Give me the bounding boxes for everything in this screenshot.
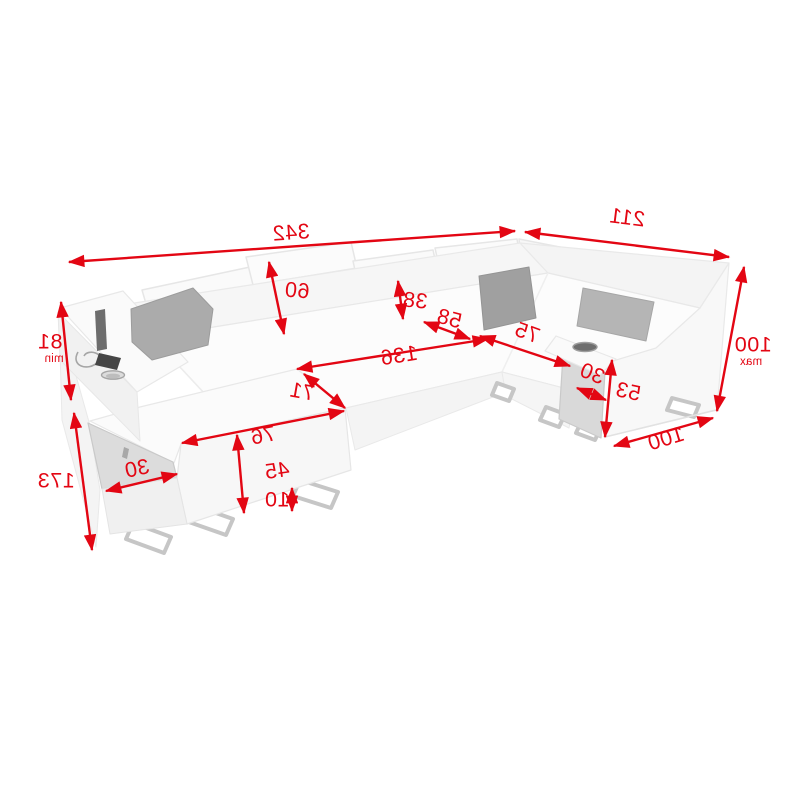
dim-label-right-side-width: 211 xyxy=(608,203,647,232)
product-dimension-diagram: 342 211 100 max 81 min 173 60 38 58 136 … xyxy=(0,0,800,800)
sofa-diagram-canvas xyxy=(0,0,800,800)
dim-label-right-armrest-height: 53 xyxy=(613,377,643,407)
cup-holder-right xyxy=(573,343,597,352)
dim-label-headrest-height: 60 xyxy=(283,277,310,304)
dim-label-total-width: 342 xyxy=(271,219,310,247)
dim-label-sleeping-width: 71 xyxy=(288,378,317,407)
dim-label-leg-height: 10 xyxy=(265,488,290,513)
dim-label-backrest-height: 38 xyxy=(401,287,428,314)
dim-label-chaise-front-width: 76 xyxy=(248,421,277,450)
dim-label-height-min: 81 xyxy=(38,330,63,355)
dim-label-left-shelf-depth: 30 xyxy=(122,454,152,484)
dim-label-height-max-suffix: max xyxy=(740,356,762,368)
dim-label-height-max: 100 xyxy=(734,333,771,358)
cup-holder-left-inner xyxy=(106,374,120,379)
phone xyxy=(95,309,107,351)
dim-label-total-depth: 173 xyxy=(37,469,74,494)
dim-label-height-min-suffix: min xyxy=(44,353,63,365)
dim-label-seat-box-height: 45 xyxy=(263,457,291,485)
